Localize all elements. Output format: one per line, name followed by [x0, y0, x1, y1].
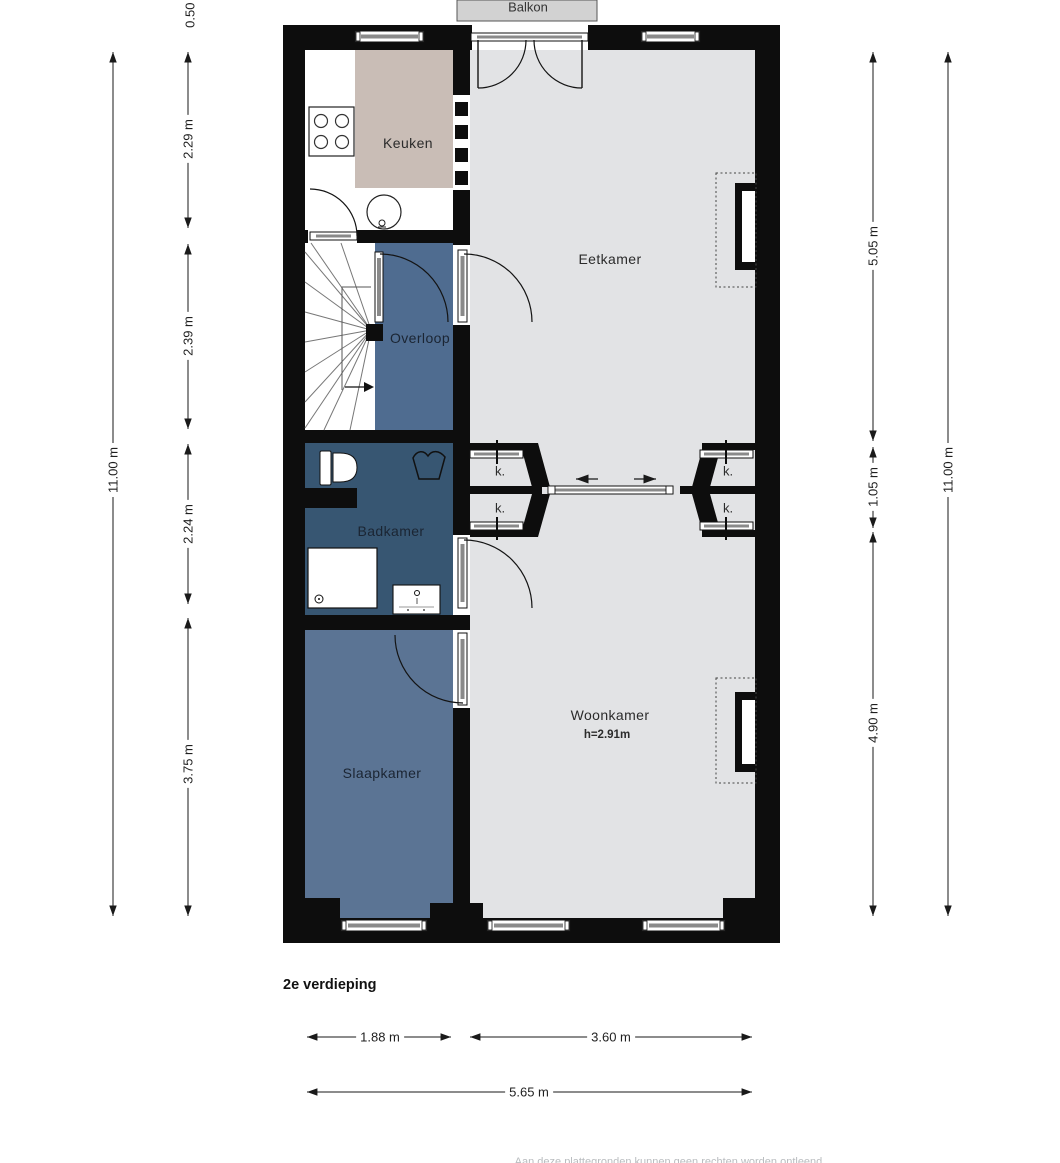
room-floors [305, 50, 755, 918]
dim-label-left-1: 2.29 m [181, 115, 196, 163]
shower-icon [308, 548, 377, 608]
bathroom-sink-icon [393, 585, 440, 614]
toilet-icon [320, 451, 357, 485]
eetkamer-woonkamer-floor [470, 50, 755, 918]
stove-icon [309, 107, 354, 156]
balcony-door-threshold [471, 33, 588, 41]
door-leaf-slaapkamer [458, 633, 467, 705]
room-label-eetkamer: Eetkamer [578, 251, 641, 267]
door-leaf-badkamer [458, 538, 467, 608]
dim-label-balcony-depth: 0.50 m [183, 0, 198, 32]
stair-newel [366, 324, 383, 341]
dim-label-right-1: 5.05 m [866, 222, 881, 270]
balcony-label: Balkon [508, 0, 548, 15]
dim-label-bottom-total: 5.65 m [505, 1085, 553, 1100]
floorplan-drawing [0, 0, 1060, 1163]
door-leaf-eetkamer [458, 250, 467, 322]
door-leaf-keuken [310, 232, 357, 240]
dim-label-right-2: 1.05 m [866, 463, 881, 511]
door-leaf-overloop [375, 252, 383, 322]
room-label-slaapkamer: Slaapkamer [343, 765, 422, 781]
room-label-keuken: Keuken [383, 135, 433, 151]
window-top-keuken [355, 31, 424, 42]
keuken-floor-accent [355, 50, 453, 188]
window-bottom-woonkamer-right [642, 920, 725, 931]
dim-label-bottom-2: 3.60 m [587, 1030, 635, 1045]
room-label-woonkamer: Woonkamer [571, 707, 650, 723]
dim-label-left-2: 2.39 m [181, 312, 196, 360]
window-bottom-woonkamer-left [487, 920, 570, 931]
dim-label-right-3: 4.90 m [866, 699, 881, 747]
dim-label-left-4: 3.75 m [181, 740, 196, 788]
footer-disclaimer-clipped: Aan deze plattegronden kunnen geen recht… [435, 1156, 905, 1163]
closet-label-left-top: k. [495, 464, 505, 479]
dim-label-left-3: 2.24 m [181, 500, 196, 548]
room-label-overloop: Overloop [390, 330, 450, 346]
woonkamer-ceiling-height: h=2.91m [584, 729, 630, 741]
dim-label-left-outer: 11.00 m [106, 443, 121, 497]
kitchen-sink-icon [367, 195, 401, 229]
closet-label-left-bottom: k. [495, 501, 505, 516]
floorplan-canvas: Balkon Keuken Eetkamer Overloop Badkamer… [0, 0, 1060, 1163]
closet-label-right-top: k. [723, 464, 733, 479]
dim-label-bottom-1: 1.88 m [356, 1030, 404, 1045]
dim-label-right-outer: 11.00 m [941, 443, 956, 497]
floor-title: 2e verdieping [283, 977, 376, 993]
closet-label-right-bottom: k. [723, 501, 733, 516]
window-top-eetkamer [641, 31, 700, 42]
window-bottom-slaapkamer [341, 920, 427, 931]
room-label-badkamer: Badkamer [357, 523, 424, 539]
